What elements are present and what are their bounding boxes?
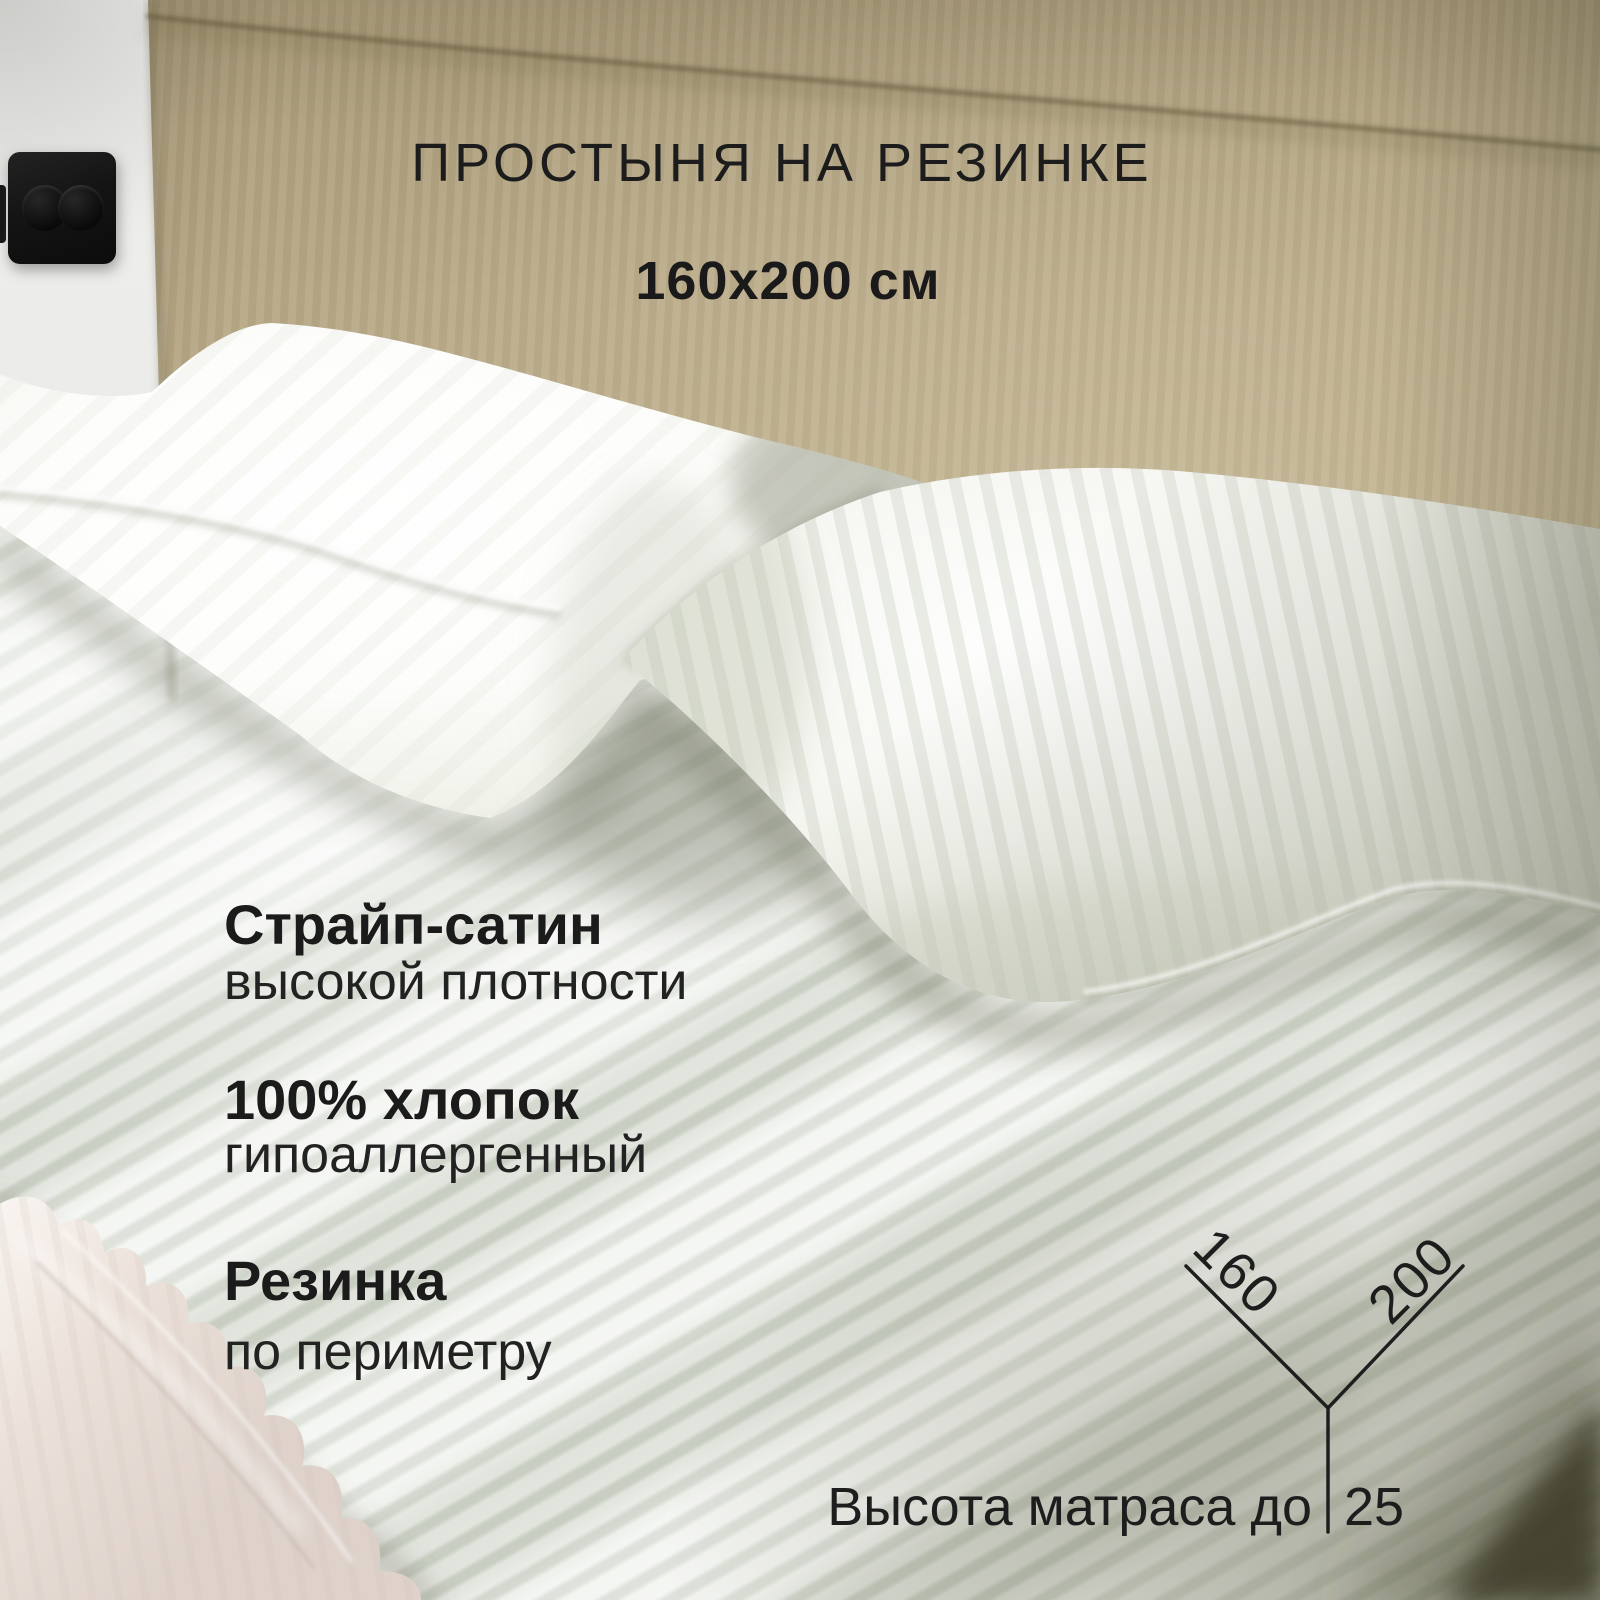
feature-title-cotton: 100% хлопок	[224, 1072, 579, 1128]
headline: ПРОСТЫНЯ НА РЕЗИНКЕ	[0, 136, 1564, 190]
mattress-height-caption: Высота матраса до	[827, 1480, 1312, 1534]
product-infographic: ПРОСТЫНЯ НА РЕЗИНКЕ 160x200 см Страйп-са…	[0, 0, 1600, 1600]
feature-subtitle-cotton: гипоаллергенный	[224, 1129, 647, 1181]
feature-title-elastic: Резинка	[224, 1253, 446, 1309]
feature-subtitle-elastic: по периметру	[224, 1326, 552, 1378]
feature-title-fabric: Страйп-сатин	[224, 897, 603, 953]
wall-outlet-partial-icon	[0, 185, 6, 243]
mattress-height-value: 25	[1344, 1480, 1404, 1534]
size-label: 160x200 см	[0, 254, 1576, 308]
feature-subtitle-fabric: высокой плотности	[224, 956, 687, 1008]
socket-right-icon	[58, 185, 104, 231]
